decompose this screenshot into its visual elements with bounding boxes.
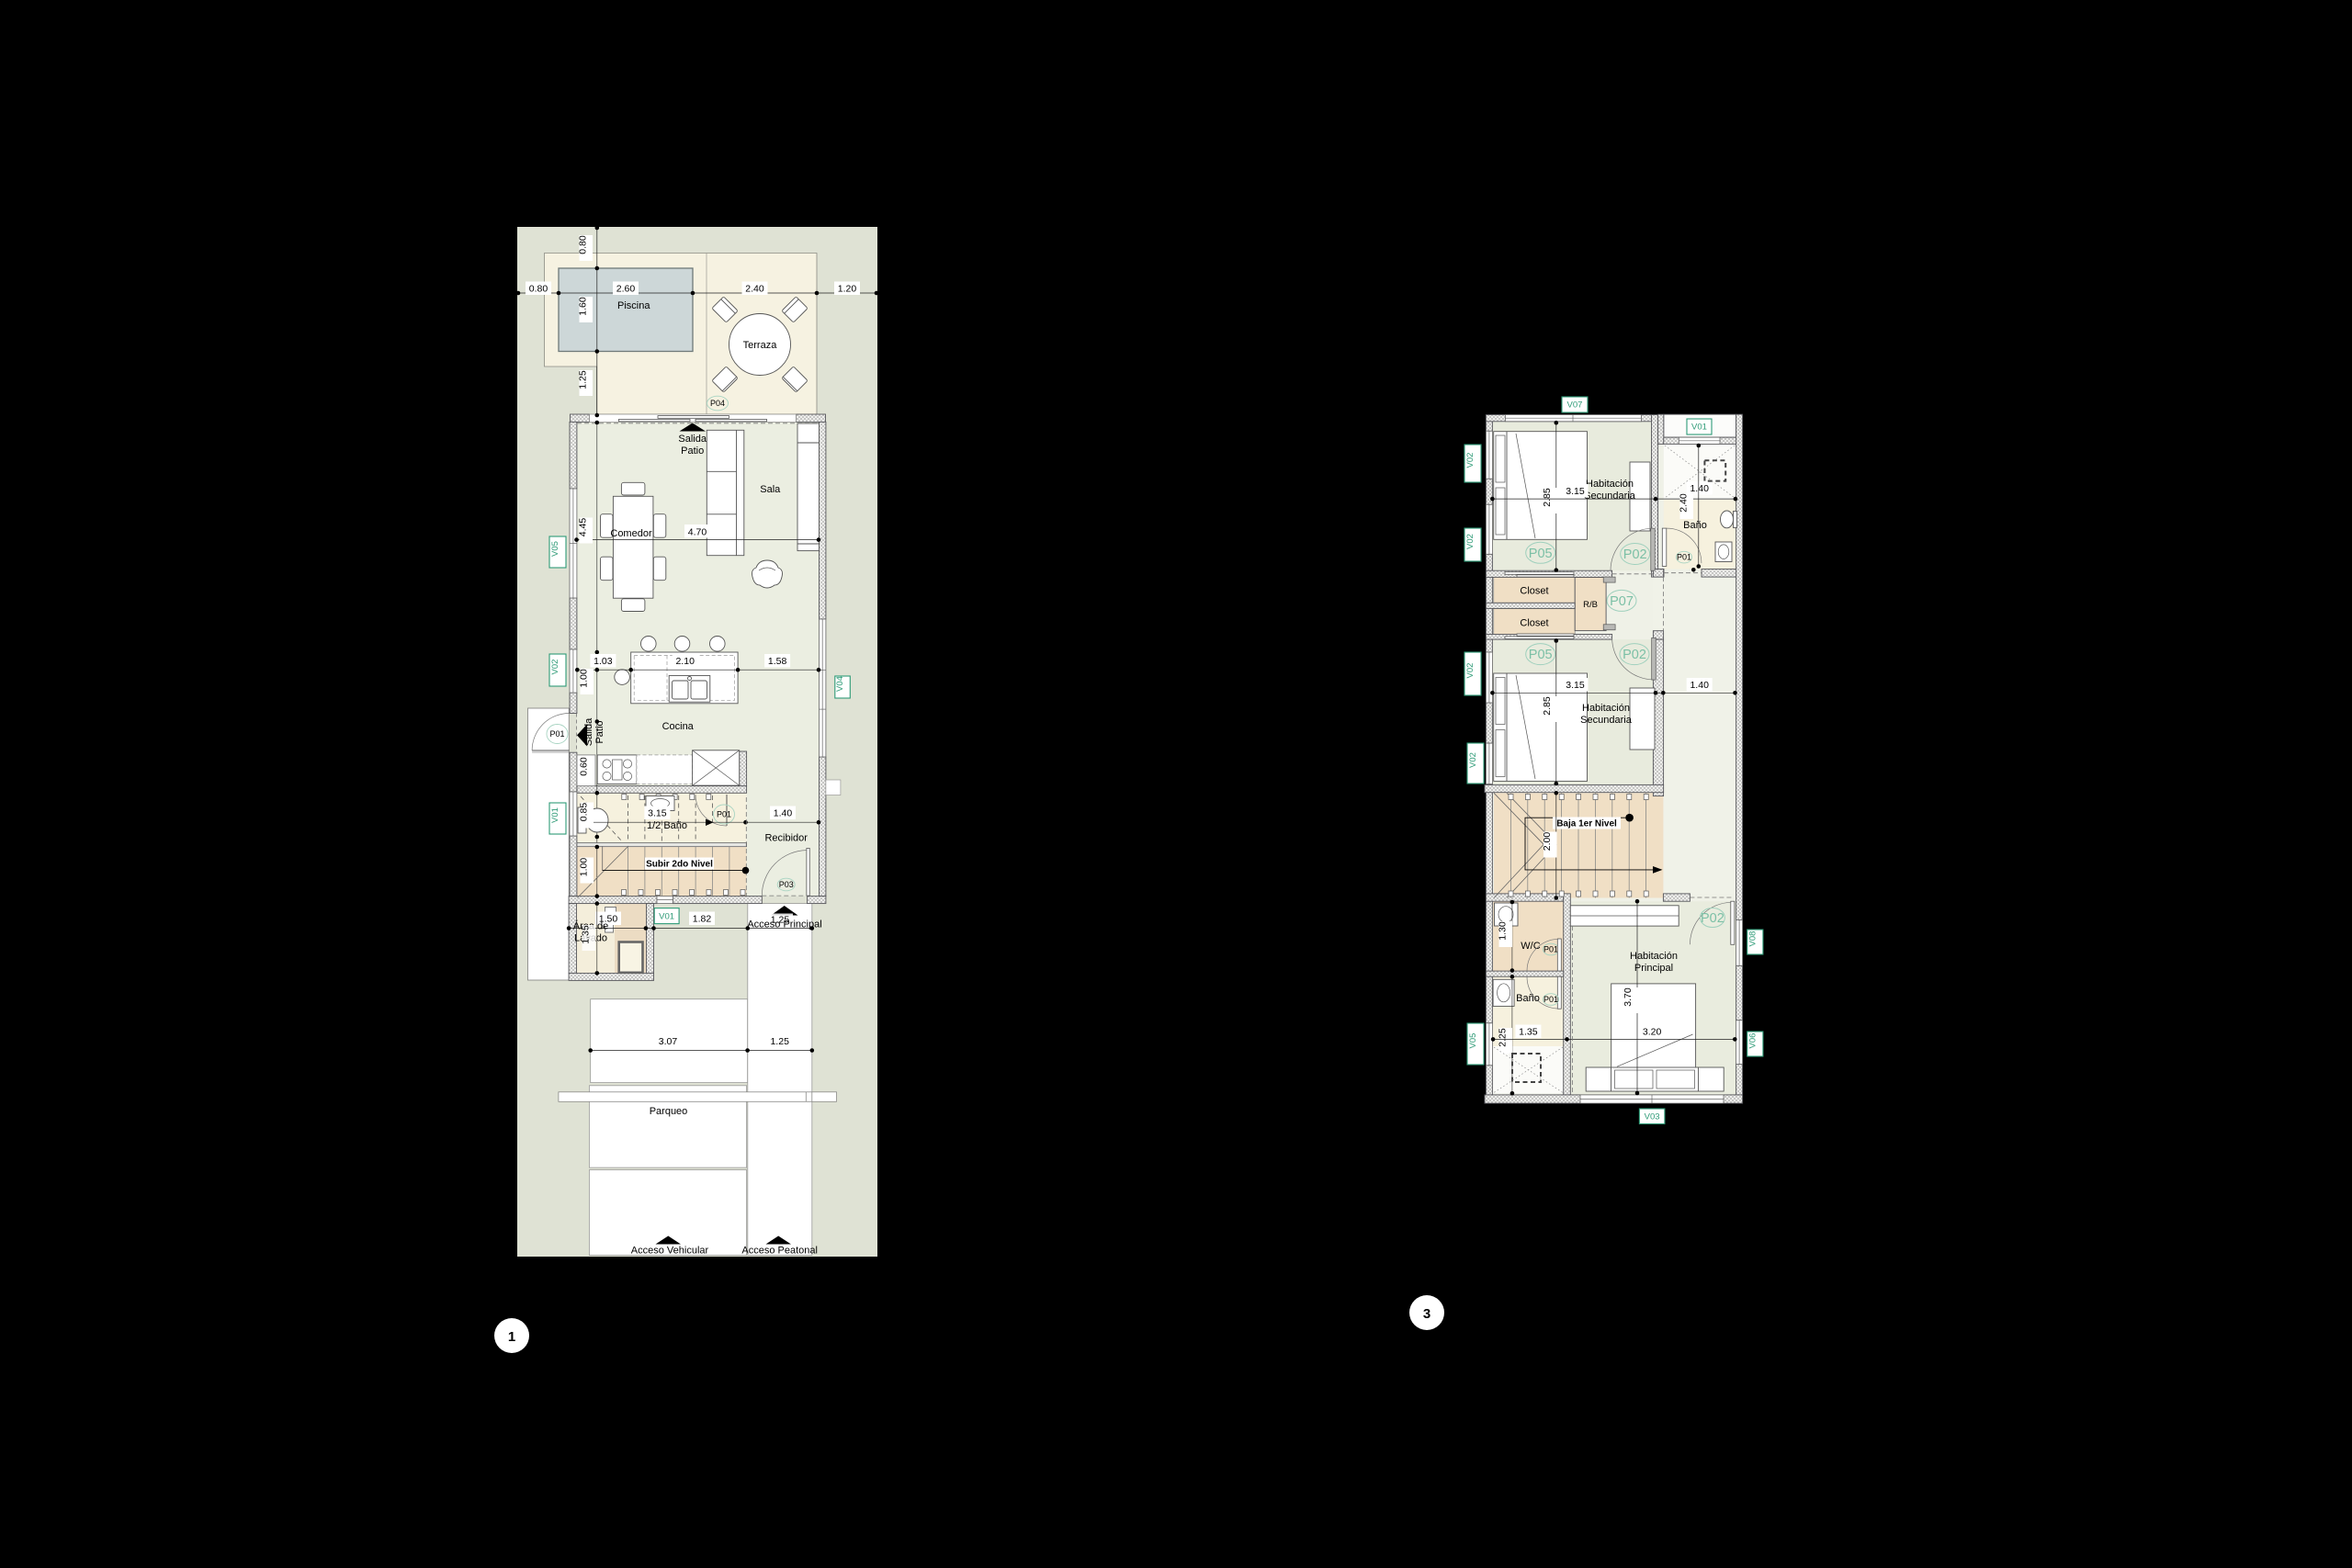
svg-text:P04: P04 [710, 399, 725, 408]
svg-text:P01: P01 [717, 810, 731, 819]
svg-text:V02: V02 [1465, 453, 1476, 468]
svg-text:Terraza: Terraza [743, 340, 778, 351]
svg-text:Secundaria: Secundaria [1584, 491, 1636, 502]
svg-text:2.40: 2.40 [1679, 493, 1690, 513]
svg-text:V03: V03 [1645, 1112, 1660, 1122]
svg-text:Salida: Salida [678, 434, 707, 445]
svg-text:Sala: Sala [760, 484, 781, 495]
svg-text:0.60: 0.60 [579, 757, 590, 776]
svg-text:V02: V02 [1465, 534, 1476, 549]
svg-text:Cocina: Cocina [662, 721, 695, 732]
svg-text:P07: P07 [1610, 594, 1634, 609]
svg-text:V05: V05 [550, 541, 560, 557]
svg-text:W/C: W/C [1521, 941, 1540, 952]
svg-text:0.80: 0.80 [529, 284, 548, 295]
svg-text:V04: V04 [835, 676, 845, 692]
svg-text:0.80: 0.80 [578, 235, 589, 254]
svg-text:Salida: Salida [583, 717, 594, 746]
svg-text:V05: V05 [1468, 1033, 1478, 1049]
svg-text:1.25: 1.25 [578, 370, 589, 389]
svg-text:0.85: 0.85 [579, 803, 590, 822]
svg-text:2.60: 2.60 [616, 284, 636, 295]
svg-text:P01: P01 [549, 729, 564, 739]
svg-text:V02: V02 [1465, 663, 1476, 679]
svg-text:Parqueo: Parqueo [650, 1106, 688, 1117]
svg-text:P01: P01 [1543, 995, 1558, 1004]
svg-text:2.85: 2.85 [1542, 488, 1553, 507]
svg-text:1.35: 1.35 [1519, 1027, 1538, 1038]
svg-text:Acceso Peatonal: Acceso Peatonal [741, 1246, 818, 1257]
svg-text:V02: V02 [1468, 752, 1478, 768]
svg-text:2.10: 2.10 [675, 656, 695, 667]
svg-text:Habitación: Habitación [1586, 479, 1634, 490]
svg-text:4.70: 4.70 [688, 527, 707, 538]
svg-text:1.30: 1.30 [1498, 921, 1509, 941]
svg-text:Closet: Closet [1520, 618, 1548, 629]
svg-text:3: 3 [1423, 1306, 1430, 1322]
svg-text:1.40: 1.40 [1690, 680, 1709, 691]
svg-text:Recibidor: Recibidor [764, 833, 808, 844]
svg-text:P03: P03 [779, 880, 794, 889]
svg-text:Comedor: Comedor [610, 528, 652, 539]
svg-text:Baño: Baño [1683, 520, 1707, 531]
svg-text:Baja 1er Nivel: Baja 1er Nivel [1556, 819, 1617, 829]
svg-text:Patio: Patio [681, 446, 704, 457]
svg-text:V07: V07 [1567, 400, 1583, 411]
svg-text:Patio: Patio [594, 720, 605, 743]
svg-text:Habitación: Habitación [1582, 703, 1630, 714]
svg-text:2.85: 2.85 [1542, 696, 1553, 716]
svg-text:1/2 Baño: 1/2 Baño [647, 820, 687, 831]
svg-text:1.00: 1.00 [579, 669, 590, 688]
svg-text:Piscina: Piscina [617, 300, 650, 311]
svg-text:2.40: 2.40 [745, 284, 764, 295]
svg-text:Acceso Vehicular: Acceso Vehicular [631, 1246, 709, 1257]
svg-text:3.15: 3.15 [1566, 680, 1585, 691]
svg-text:Baño: Baño [1516, 993, 1540, 1004]
svg-text:Principal: Principal [1634, 963, 1673, 974]
svg-text:1.35: 1.35 [581, 925, 592, 944]
svg-text:P05: P05 [1529, 547, 1553, 561]
svg-text:3.07: 3.07 [659, 1036, 678, 1047]
svg-text:Secundaria: Secundaria [1580, 715, 1633, 726]
svg-text:4.45: 4.45 [578, 518, 589, 537]
svg-text:2.00: 2.00 [1542, 832, 1553, 852]
svg-text:1.03: 1.03 [594, 656, 613, 667]
svg-text:V01: V01 [1691, 423, 1707, 433]
svg-text:V01: V01 [550, 807, 560, 823]
svg-text:2.25: 2.25 [1498, 1028, 1509, 1047]
svg-text:3.15: 3.15 [648, 808, 667, 819]
svg-text:P02: P02 [1701, 911, 1724, 926]
svg-text:Closet: Closet [1520, 586, 1548, 597]
svg-text:P02: P02 [1623, 648, 1646, 662]
svg-text:P02: P02 [1623, 547, 1647, 562]
svg-text:1.00: 1.00 [579, 858, 590, 877]
svg-text:V02: V02 [550, 660, 560, 675]
svg-text:3.15: 3.15 [1566, 486, 1585, 497]
svg-text:3.20: 3.20 [1643, 1027, 1662, 1038]
svg-text:1.40: 1.40 [1690, 483, 1709, 494]
svg-text:1.82: 1.82 [693, 914, 712, 925]
svg-text:Subir 2do Nivel: Subir 2do Nivel [646, 860, 713, 870]
svg-text:R/B: R/B [1583, 600, 1598, 610]
svg-text:V08: V08 [1747, 931, 1758, 947]
svg-text:3.70: 3.70 [1623, 987, 1634, 1007]
svg-text:P05: P05 [1529, 648, 1553, 662]
svg-text:V06: V06 [1747, 1033, 1758, 1049]
svg-text:P01: P01 [1543, 945, 1558, 954]
svg-text:1.25: 1.25 [770, 1036, 789, 1047]
svg-text:1.20: 1.20 [838, 284, 857, 295]
svg-text:V01: V01 [659, 912, 674, 922]
svg-text:1.60: 1.60 [578, 297, 589, 316]
svg-text:1: 1 [508, 1329, 515, 1345]
svg-text:1.40: 1.40 [774, 808, 793, 819]
svg-text:1.58: 1.58 [768, 656, 787, 667]
svg-text:P01: P01 [1677, 553, 1691, 562]
